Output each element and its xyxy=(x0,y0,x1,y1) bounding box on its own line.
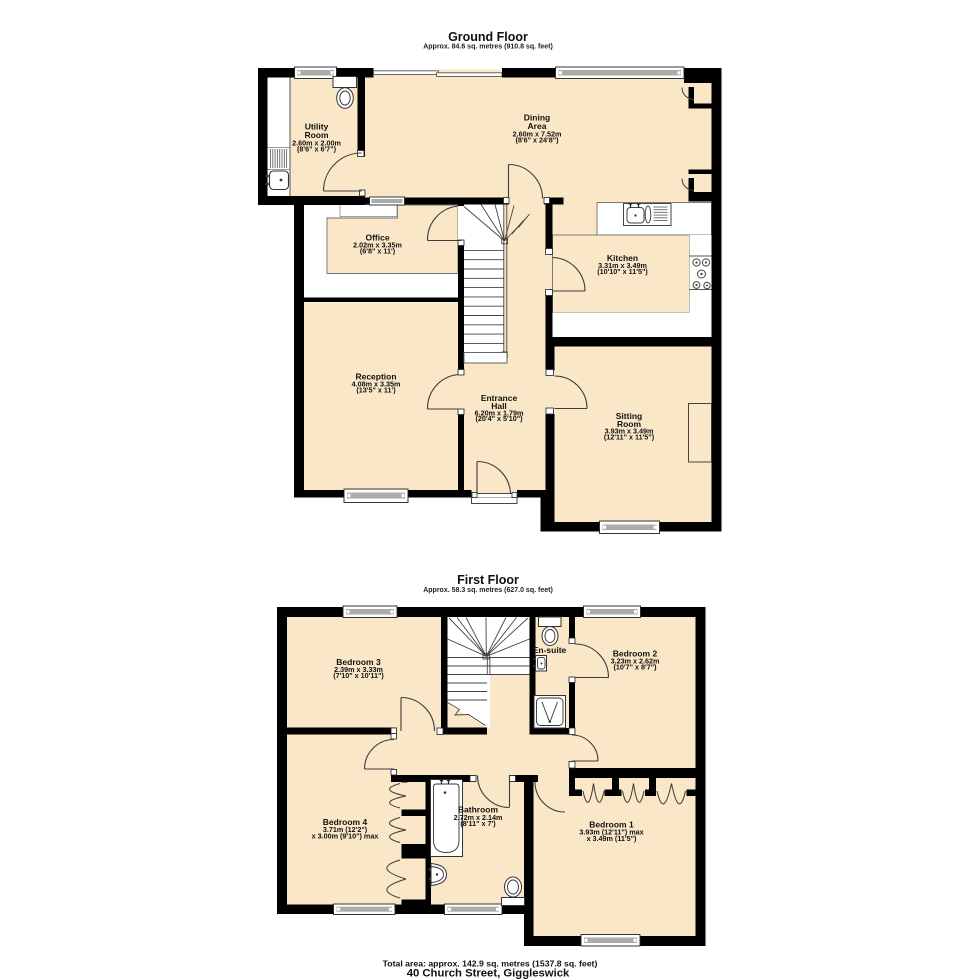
svg-text:(13'5" x 11'): (13'5" x 11') xyxy=(356,386,396,395)
svg-text:(10'10" x 11'5"): (10'10" x 11'5") xyxy=(597,267,648,276)
svg-text:(8'11" x 7'): (8'11" x 7') xyxy=(460,819,496,828)
svg-text:40 Church Street, Giggleswick: 40 Church Street, Giggleswick xyxy=(407,968,570,980)
svg-text:Approx. 84.6 sq. metres (91: Approx. 84.6 sq. metres (910.8 sq. feet) xyxy=(423,44,553,51)
svg-text:First Floor: First Floor xyxy=(457,573,519,587)
svg-text:x 3.00m (9'10") max: x 3.00m (9'10") max xyxy=(312,832,379,841)
svg-text:(7'10" x 10'11"): (7'10" x 10'11") xyxy=(333,671,384,680)
svg-text:(20'4" x 5'10"): (20'4" x 5'10") xyxy=(476,414,524,423)
svg-text:(8'6" x 24'8"): (8'6" x 24'8") xyxy=(516,136,560,145)
svg-text:En-suite: En-suite xyxy=(533,645,567,655)
svg-text:Ground Floor: Ground Floor xyxy=(448,30,528,44)
svg-text:x 3.49m (11'5"): x 3.49m (11'5") xyxy=(587,834,637,843)
svg-text:(12'11" x 11'5"): (12'11" x 11'5") xyxy=(604,433,655,442)
svg-text:Approx. 58.3 sq. metres (62: Approx. 58.3 sq. metres (627.0 sq. feet) xyxy=(423,587,553,594)
svg-text:(8'6" x 6'7"): (8'6" x 6'7") xyxy=(297,145,337,154)
svg-text:(6'8" x 11'): (6'8" x 11') xyxy=(360,247,396,256)
svg-text:(10'7" x 8'7"): (10'7" x 8'7") xyxy=(614,663,658,672)
